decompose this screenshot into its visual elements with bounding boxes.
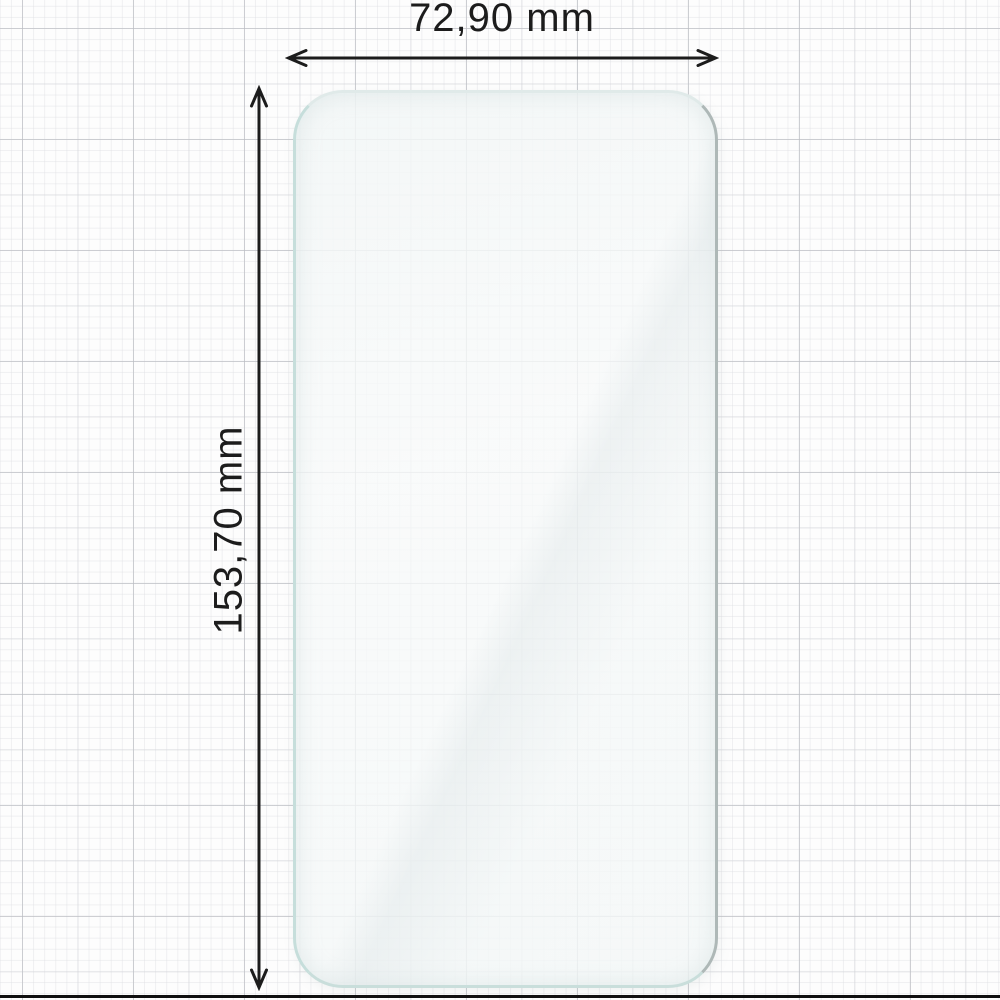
width-dimension-label: 72,90 mm — [285, 0, 719, 42]
glass-reflection — [296, 93, 715, 985]
screen-protector — [293, 90, 718, 988]
graph-paper-background: 72,90 mm 153,70 mm — [0, 0, 1000, 1000]
width-dimension-arrow-icon — [285, 48, 719, 68]
photo-bottom-edge — [0, 995, 1000, 998]
height-dimension-arrow-icon — [249, 85, 269, 991]
height-dimension-label: 153,70 mm — [207, 425, 252, 634]
